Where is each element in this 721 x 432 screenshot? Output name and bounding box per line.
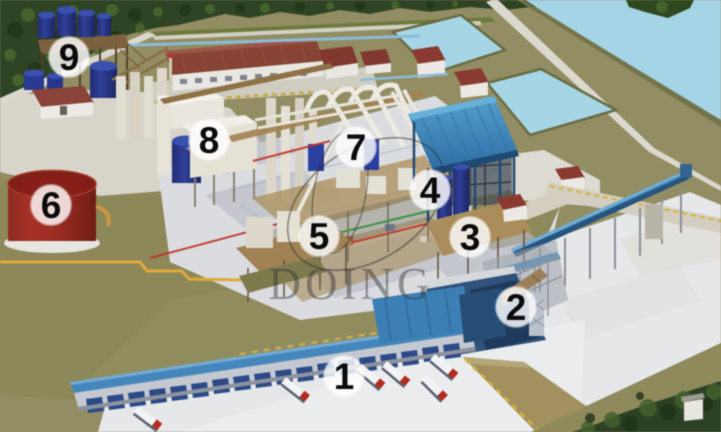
svg-text:5: 5: [309, 216, 330, 257]
svg-text:9: 9: [59, 37, 80, 78]
svg-text:3: 3: [460, 217, 481, 258]
svg-text:1: 1: [334, 356, 355, 397]
svg-text:8: 8: [199, 120, 220, 161]
svg-text:7: 7: [346, 127, 367, 168]
svg-text:DOING: DOING: [269, 259, 434, 309]
svg-text:4: 4: [420, 170, 441, 211]
svg-text:6: 6: [41, 185, 62, 226]
svg-text:2: 2: [506, 287, 527, 328]
